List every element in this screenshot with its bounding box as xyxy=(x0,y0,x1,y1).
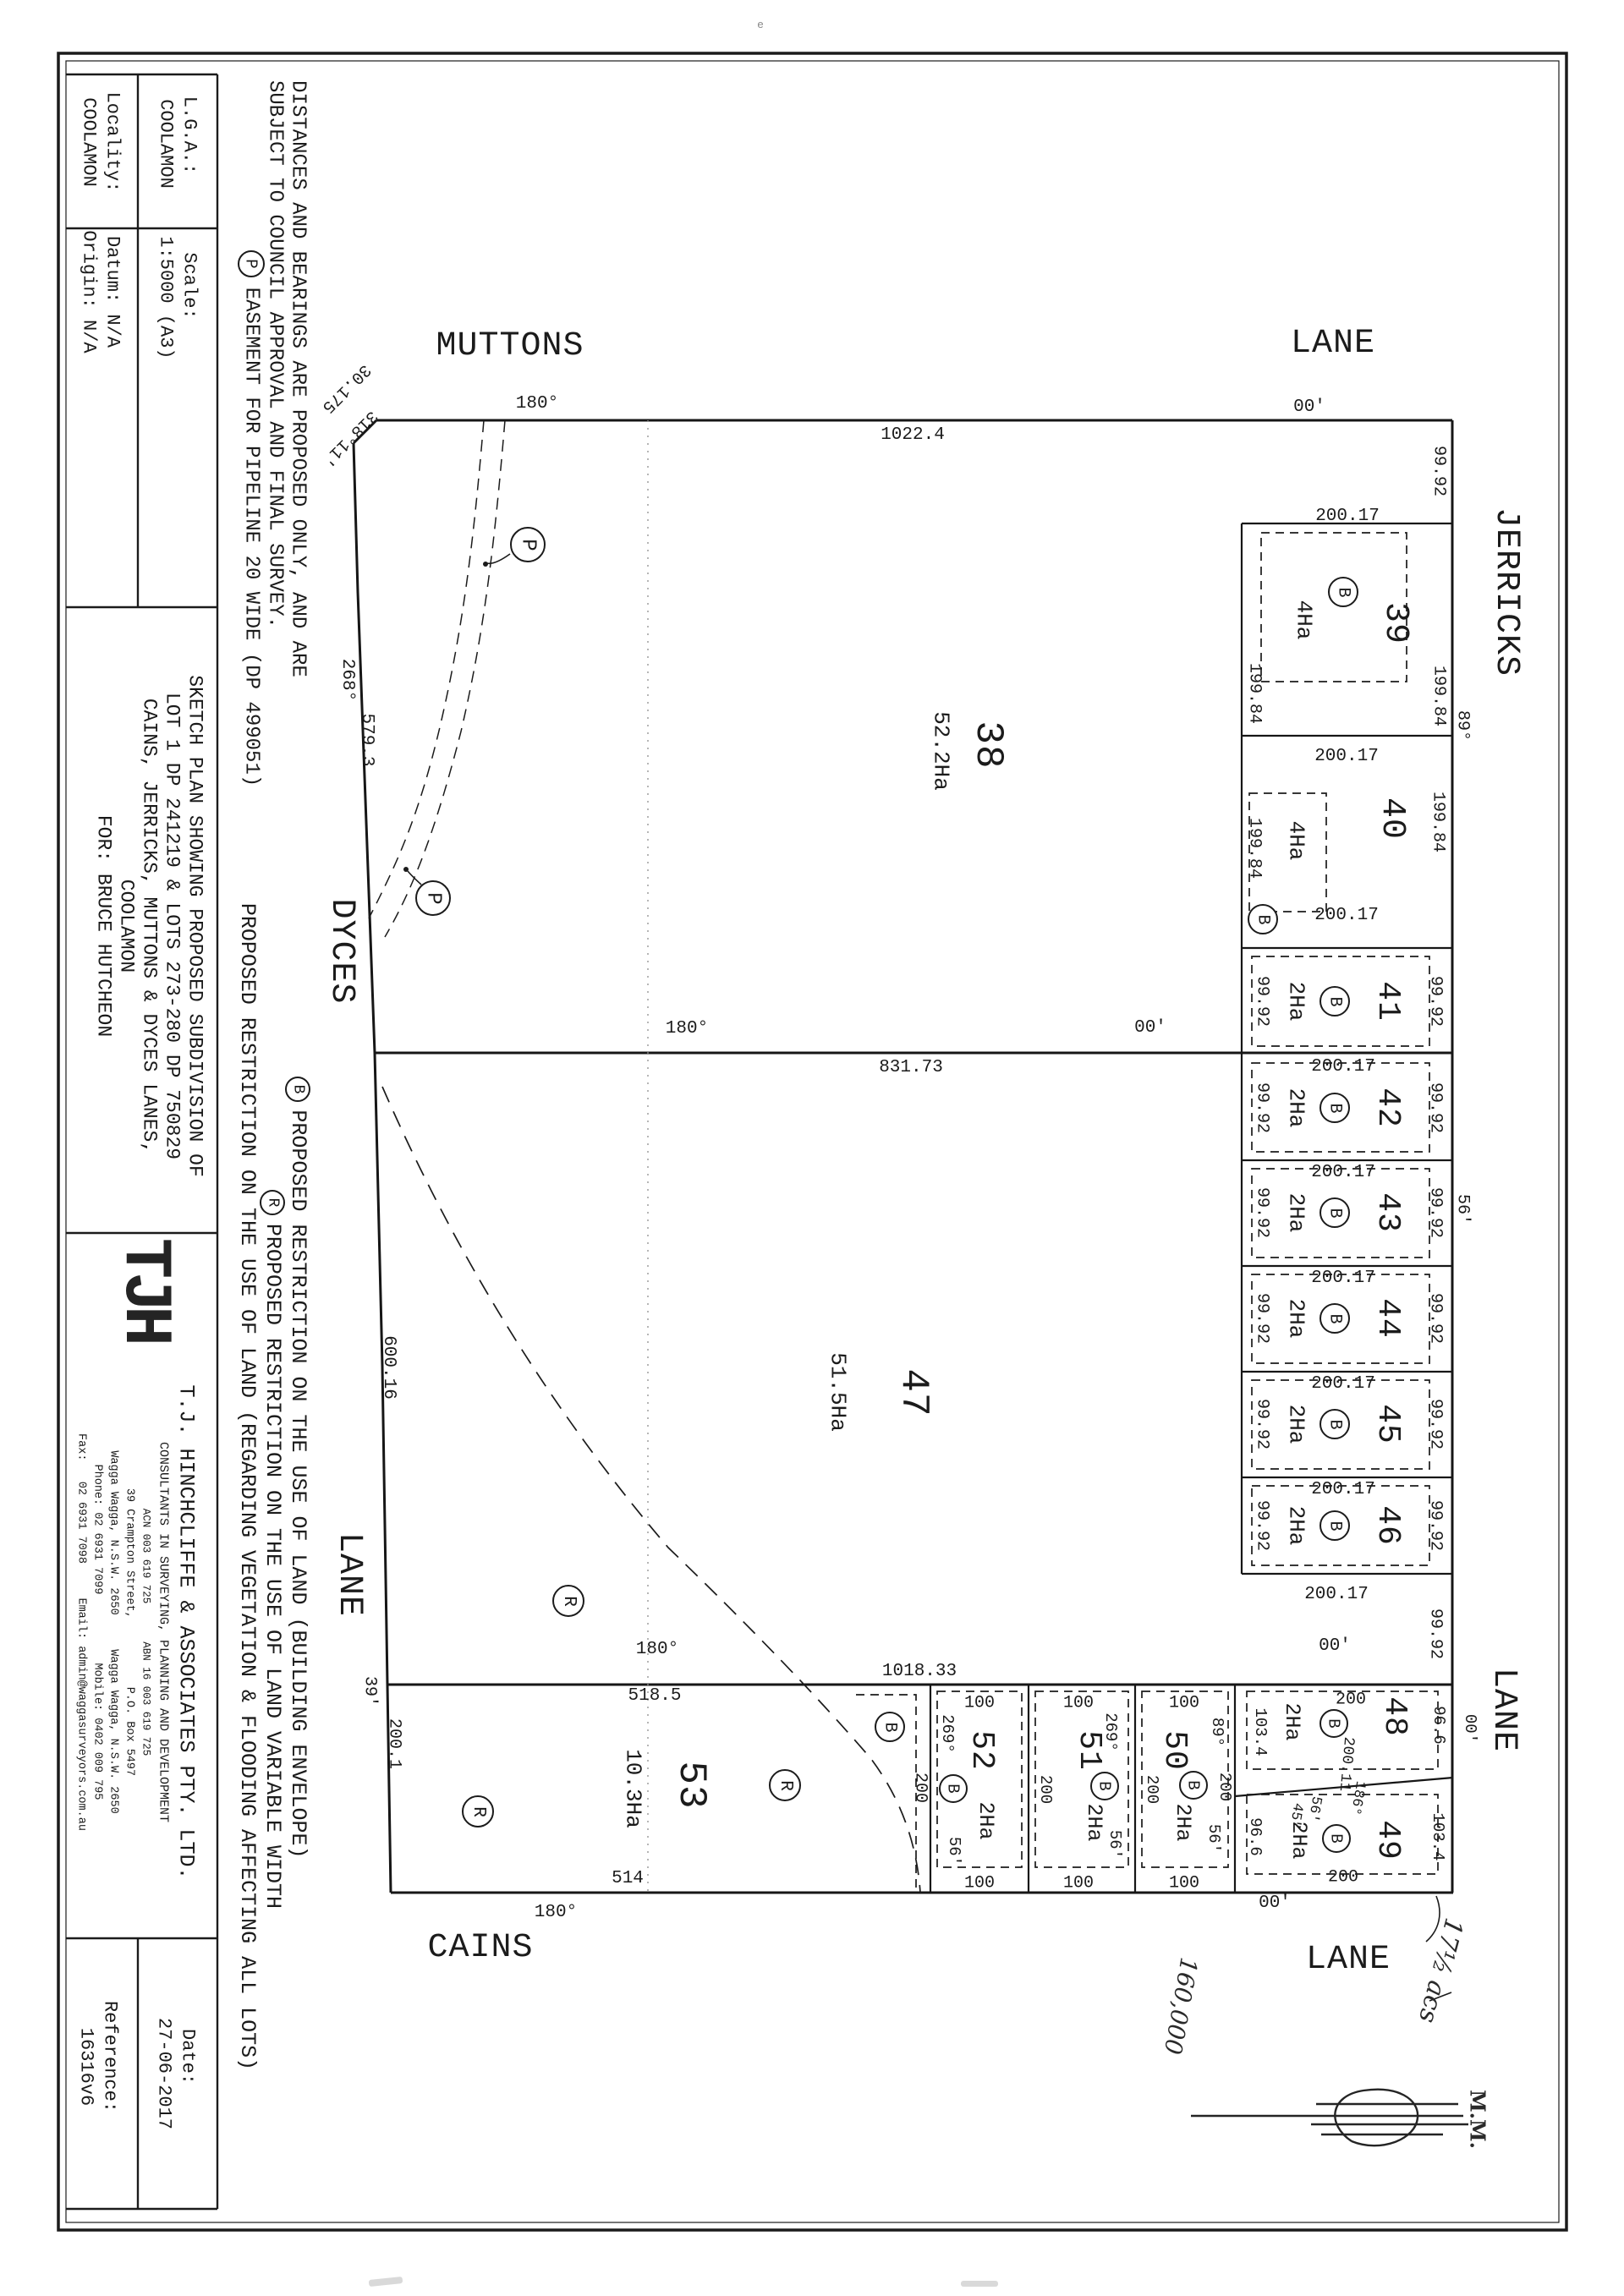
lot39-number: 39 xyxy=(1377,602,1413,644)
lot51-area: 2Ha xyxy=(1083,1803,1105,1841)
dim-1022-4: 1022.4 xyxy=(881,426,945,445)
date-label: Date: xyxy=(178,2029,197,2085)
sketch-title: SKETCH PLAN SHOWING PROPOSED SUBDIVISION… xyxy=(92,624,206,1229)
road-lane-right: LANE xyxy=(1485,1668,1521,1752)
lot49-b-letter: B xyxy=(1327,1833,1346,1843)
lot48-b-symbol: B xyxy=(1319,1709,1348,1738)
sketch-title-line4: COOLAMON xyxy=(115,624,138,1229)
company-block: T.J. HINCHCLIFFE & ASSOCIATES PTY. LTD. … xyxy=(74,1318,200,1948)
bearing-00-mid-right: 00' xyxy=(1319,1637,1351,1656)
bearing-89-jerricks: 89° xyxy=(1454,710,1472,741)
road-cains: CAINS xyxy=(427,1931,533,1966)
lot40-area: 4Ha xyxy=(1284,821,1307,861)
restriction-r-letter-1: R xyxy=(558,1596,578,1607)
lot43-b-symbol: B xyxy=(1319,1197,1350,1228)
lot48-b-letter: B xyxy=(1325,1718,1343,1728)
lot39-b-symbol: B xyxy=(1328,577,1358,607)
lot39-area: 4Ha xyxy=(1292,600,1314,640)
lga-label: L.G.A.: xyxy=(179,96,199,174)
lot46-dim-west: 99.92 xyxy=(1254,1500,1271,1551)
lga-value: COOLAMON xyxy=(156,99,175,189)
pipeline-p-letter-1: P xyxy=(517,539,540,551)
dim-600-16: 600.16 xyxy=(379,1335,398,1400)
dim-514: 514 xyxy=(612,1870,644,1888)
lot50-dim-200-west: 200 xyxy=(1143,1775,1160,1804)
lot49-area: 2Ha xyxy=(1287,1821,1309,1859)
bearing-180-bottom: 180° xyxy=(535,1904,577,1922)
bearing-39-dyces: 39' xyxy=(361,1676,379,1707)
datum-value: Datum: N/A xyxy=(102,236,122,348)
lot53-dim-200: 200 xyxy=(912,1773,930,1803)
lot50-bearing-89: 89° xyxy=(1208,1718,1225,1746)
locality-value: COOLAMON xyxy=(79,97,98,187)
lot46-number: 46 xyxy=(1370,1505,1404,1546)
lot50-b-letter: B xyxy=(1184,1780,1203,1789)
pipeline-p-symbol-2: P xyxy=(415,880,451,916)
company-registration: ACN 003 619 725 ABN 16 003 619 725 xyxy=(138,1318,154,1948)
pipeline-p-symbol-1: P xyxy=(510,527,546,562)
scan-artifact-top: e xyxy=(757,19,764,31)
dim-99-92-lane-bottom: 99.92 xyxy=(1427,1608,1445,1659)
lot47-area: 51.5Ha xyxy=(826,1352,848,1432)
lot52-area: 2Ha xyxy=(974,1801,996,1839)
reference-label: Reference: xyxy=(100,2001,119,2112)
lot38-area: 52.2Ha xyxy=(929,711,952,791)
lot51-dim-bottom: 100 xyxy=(1063,1875,1094,1893)
note-easement: EASEMENT FOR PIPELINE 20 WIDE (DP 499051… xyxy=(240,288,261,787)
lot43-b-letter: B xyxy=(1325,1208,1344,1218)
dim-200-17-lot40-bottom: 200.17 xyxy=(1314,907,1379,925)
lot53-b-letter: B xyxy=(880,1722,899,1732)
road-jerricks: JERRICKS xyxy=(1488,507,1523,677)
road-lane-bottom: LANE xyxy=(1306,1943,1391,1978)
lot38-number: 38 xyxy=(968,721,1008,769)
lot52-number: 52 xyxy=(964,1730,998,1771)
lot45-dim-east: 99.92 xyxy=(1427,1399,1445,1449)
dim-200-17-lot39-top: 200.17 xyxy=(1315,507,1380,526)
company-name: T.J. HINCHCLIFFE & ASSOCIATES PTY. LTD. xyxy=(173,1318,200,1948)
company-contact2: Fax: 02 6931 7098 Email: admin@waggasurv… xyxy=(74,1318,90,1948)
lot44-b-symbol: B xyxy=(1319,1303,1350,1334)
lot44-number: 44 xyxy=(1370,1298,1404,1339)
dim-200-17-lot40-top: 200.17 xyxy=(1314,748,1379,766)
restriction-r-symbol-1: R xyxy=(552,1585,584,1617)
origin-value: Origin: N/A xyxy=(79,230,98,353)
lot52-b-letter: B xyxy=(944,1784,963,1793)
dim-200-17-lot42: 200.17 xyxy=(1311,1058,1375,1077)
sketch-title-line3: CAINS, JERRICKS, MUTTONS & DYCES LANES, xyxy=(138,624,161,1229)
lot44-dim-east: 99.92 xyxy=(1427,1293,1445,1344)
company-address1: 39 Crampton Street, P.O. Box 5497 xyxy=(122,1318,138,1948)
dim-579-3: 579.3 xyxy=(357,713,376,766)
lot45-b-symbol: B xyxy=(1319,1409,1350,1439)
company-contact1: Phone: 02 6931 7099 Mobile: 0402 009 795 xyxy=(90,1318,106,1948)
lot50-dim-bottom: 100 xyxy=(1169,1875,1199,1893)
date-value: 27-06-2017 xyxy=(154,2018,173,2129)
r-note-letter: R xyxy=(264,1198,281,1208)
lot48-dim-200-top: 200 xyxy=(1336,1691,1366,1709)
lot41-area: 2Ha xyxy=(1284,982,1307,1022)
road-muttons: MUTTONS xyxy=(436,329,584,364)
restriction-r-letter-2: R xyxy=(775,1780,794,1791)
lot50-number: 50 xyxy=(1157,1730,1191,1771)
initials-mm: M.M. xyxy=(1466,2090,1490,2149)
lot42-dim-east: 99.92 xyxy=(1427,1082,1445,1133)
lot40-dim-west: 199.84 xyxy=(1246,818,1264,879)
lot41-number: 41 xyxy=(1370,981,1404,1022)
note-disclaimer-line2: SUBJECT TO COUNCIL APPROVAL AND FINAL SU… xyxy=(264,80,285,628)
lot45-area: 2Ha xyxy=(1284,1405,1307,1444)
survey-plan-sheet: L.G.A.: COOLAMON Locality: COOLAMON Scal… xyxy=(0,0,1624,2296)
lot42-dim-west: 99.92 xyxy=(1254,1082,1271,1133)
easement-p-symbol: P xyxy=(238,250,265,277)
lot44-b-letter: B xyxy=(1325,1313,1344,1323)
lot41-dim-east: 99.92 xyxy=(1427,976,1445,1027)
sketch-title-line1: SKETCH PLAN SHOWING PROPOSED SUBDIVISION… xyxy=(184,624,206,1229)
lot39-dim-east: 199.84 xyxy=(1430,666,1448,726)
dim-200-1: 200.1 xyxy=(386,1718,403,1769)
lot48-dim-96-6: 96.6 xyxy=(1429,1706,1446,1745)
bearing-56-jerricks: 56' xyxy=(1454,1194,1472,1225)
bearing-00-mid: 00' xyxy=(1134,1019,1166,1038)
lot49-dim-96-6: 96.6 xyxy=(1246,1817,1263,1856)
lot49-b-symbol: B xyxy=(1322,1824,1351,1853)
lot47-number: 47 xyxy=(893,1368,934,1417)
lot45-number: 45 xyxy=(1370,1404,1404,1444)
lot41-b-symbol: B xyxy=(1319,986,1350,1016)
bearing-268-dyces: 268° xyxy=(337,659,356,701)
restriction-r-letter-3: R xyxy=(468,1806,487,1817)
lot48-number: 48 xyxy=(1377,1696,1411,1737)
lot49-dim-103-4: 103.4 xyxy=(1429,1812,1446,1860)
lot39-b-letter: B xyxy=(1333,587,1352,597)
sketch-title-line2: LOT 1 DP 241219 & LOTS 273-280 DP 750829 xyxy=(161,624,184,1229)
lot51-b-symbol: B xyxy=(1090,1772,1119,1800)
lot50-b-symbol: B xyxy=(1179,1771,1208,1800)
lot44-dim-west: 99.92 xyxy=(1254,1293,1271,1344)
lot50-dim-top: 100 xyxy=(1169,1695,1199,1712)
lot40-dim-east: 199.84 xyxy=(1429,792,1447,852)
bearing-00-top: 00' xyxy=(1293,398,1325,417)
easement-p-letter: P xyxy=(242,259,261,268)
restriction-r-symbol-3: R xyxy=(462,1795,494,1827)
lot42-b-letter: B xyxy=(1325,1103,1344,1113)
dim-200-17-lot46: 200.17 xyxy=(1311,1481,1375,1499)
lot51-dim-200: 200 xyxy=(1036,1775,1053,1804)
lot46-b-letter: B xyxy=(1325,1521,1344,1531)
bearing-180-53: 180° xyxy=(636,1641,678,1659)
dim-831-73: 831.73 xyxy=(879,1059,943,1077)
lot48-dim-103-4: 103.4 xyxy=(1251,1707,1268,1756)
restriction-r-symbol-2: R xyxy=(769,1769,801,1801)
lot41-dim-west: 99.92 xyxy=(1254,976,1271,1027)
lot42-b-symbol: B xyxy=(1319,1093,1350,1123)
lot46-area: 2Ha xyxy=(1284,1506,1307,1546)
note-building-envelope: PROPOSED RESTRICTION ON THE USE OF LAND … xyxy=(287,1110,309,1858)
lot41-b-letter: B xyxy=(1325,996,1344,1006)
bearing-00-bottom: 00' xyxy=(1259,1894,1291,1913)
lot40-number: 40 xyxy=(1374,797,1409,840)
lot43-dim-east: 99.92 xyxy=(1427,1187,1445,1238)
scale-label: Scale: xyxy=(179,252,199,319)
bearing-00-jerricks-south: 00' xyxy=(1461,1714,1478,1743)
lot53-number: 53 xyxy=(671,1761,711,1809)
lot45-dim-west: 99.92 xyxy=(1254,1399,1271,1449)
road-lane-top: LANE xyxy=(1291,326,1375,362)
lot49-dim-200-bottom: 200 xyxy=(1328,1869,1358,1887)
reference-value: 16316v6 xyxy=(76,2028,96,2106)
lot49-bearing-56: 56' xyxy=(1304,1795,1324,1822)
dim-200-17-lot43: 200.17 xyxy=(1311,1164,1375,1182)
lot51-dim-top: 100 xyxy=(1063,1695,1094,1712)
lot42-number: 42 xyxy=(1370,1088,1404,1128)
b-note-letter: B xyxy=(289,1085,306,1094)
r-note-symbol: R xyxy=(260,1190,285,1215)
lot45-b-letter: B xyxy=(1325,1419,1344,1429)
note-variable-width: PROPOSED RESTRICTION ON THE USE OF LAND … xyxy=(261,1224,283,1909)
sketch-title-line5: FOR: BRUCE HUTCHEON xyxy=(92,624,115,1229)
scan-smudge-right xyxy=(961,2281,998,2287)
lot52-dim-top: 100 xyxy=(964,1695,995,1712)
company-tagline: CONSULTANTS IN SURVEYING, PLANNING AND D… xyxy=(154,1318,173,1948)
lot53-area: 10.3Ha xyxy=(621,1749,644,1828)
dim-99-92-lane-top: 99.92 xyxy=(1430,446,1448,496)
lot52-dim-bottom: 100 xyxy=(964,1875,995,1893)
lot40-b-symbol: B xyxy=(1248,904,1278,934)
dim-518-5: 518.5 xyxy=(628,1687,681,1706)
dim-1018-33: 1018.33 xyxy=(882,1663,957,1681)
dim-200-17-lot45: 200.17 xyxy=(1311,1375,1375,1394)
lot39-dim-west: 199.84 xyxy=(1246,663,1264,724)
lot43-number: 43 xyxy=(1370,1192,1404,1233)
lot51-bearing-56: 56' xyxy=(1106,1830,1122,1859)
road-lane-left: LANE xyxy=(331,1532,366,1617)
lot52-b-symbol: B xyxy=(939,1774,968,1803)
lot42-area: 2Ha xyxy=(1284,1088,1307,1128)
company-address2: Wagga Wagga, N.S.W. 2650 Wagga Wagga, N.… xyxy=(106,1318,122,1948)
lot40-b-letter: B xyxy=(1253,914,1272,924)
pipeline-p-letter-2: P xyxy=(422,892,445,904)
dim-200-17-lot44: 200.17 xyxy=(1311,1269,1375,1288)
lot43-area: 2Ha xyxy=(1284,1193,1307,1233)
note-vegetation-flooding: PROPOSED RESTRICTION ON THE USE OF LAND … xyxy=(236,903,258,2070)
b-note-symbol: B xyxy=(285,1077,310,1102)
scale-value: 1:5000 (A3) xyxy=(156,236,175,359)
lot44-area: 2Ha xyxy=(1284,1299,1307,1339)
lot51-b-letter: B xyxy=(1095,1781,1114,1790)
lot50-dim-200-east: 200 xyxy=(1215,1773,1232,1801)
note-disclaimer-line1: DISTANCES AND BEARINGS ARE PROPOSED ONLY… xyxy=(287,80,308,677)
lot50-area: 2Ha xyxy=(1171,1803,1193,1841)
lot52-bearing-56: 56' xyxy=(945,1837,962,1866)
locality-label: Locality: xyxy=(102,92,122,193)
lot53-b-symbol: B xyxy=(875,1712,905,1742)
lot43-dim-west: 99.92 xyxy=(1254,1187,1271,1238)
lot46-b-symbol: B xyxy=(1319,1510,1350,1541)
dim-200-17-below-46: 200.17 xyxy=(1304,1586,1369,1604)
lot46-dim-east: 99.92 xyxy=(1427,1500,1445,1551)
road-dyces: DYCES xyxy=(323,898,359,1004)
lot51-number: 51 xyxy=(1072,1730,1106,1771)
lot50-bearing-56: 56' xyxy=(1204,1824,1221,1853)
lot48-area: 2Ha xyxy=(1281,1702,1303,1740)
bearing-180-top: 180° xyxy=(516,395,558,414)
lot49-number: 49 xyxy=(1370,1820,1404,1860)
lot52-bearing-269: 269° xyxy=(938,1714,955,1753)
bearing-180-mid: 180° xyxy=(666,1020,708,1038)
